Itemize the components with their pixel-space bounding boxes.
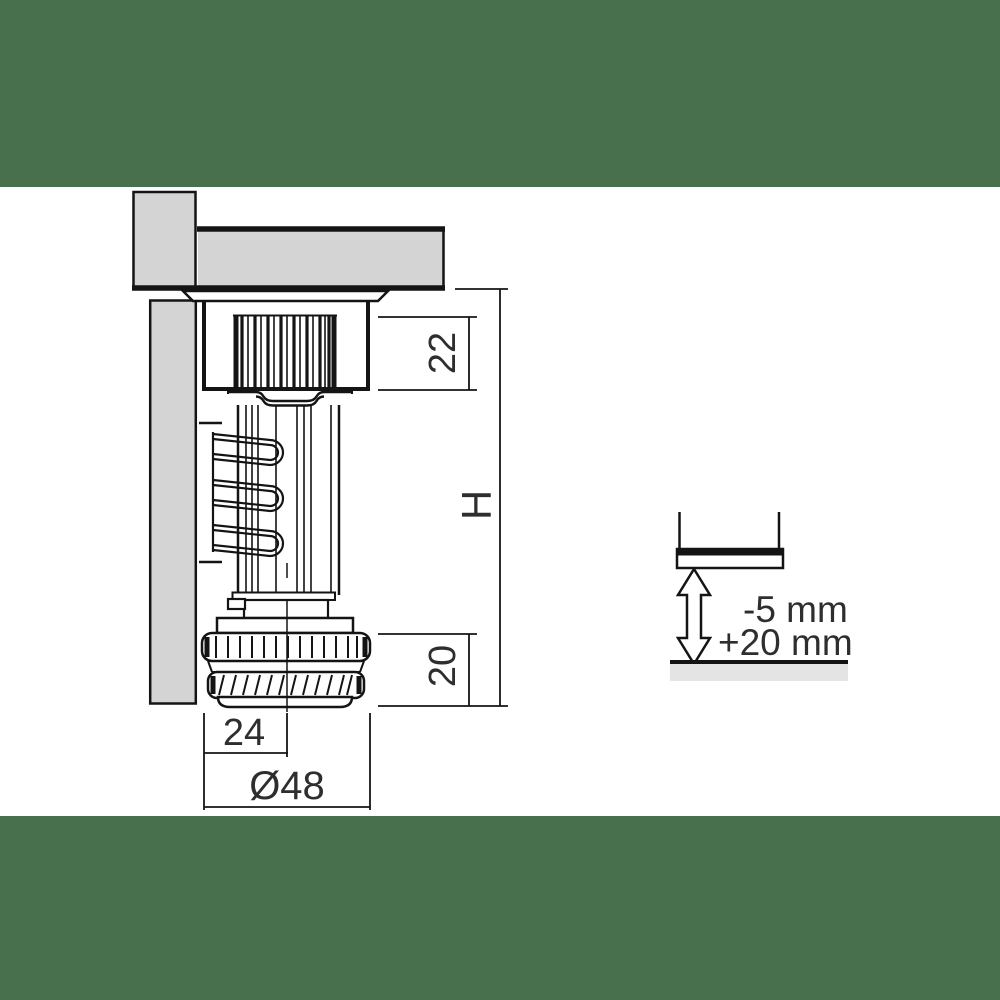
leg-foot (202, 593, 370, 713)
dimension-label-H: H (453, 490, 500, 520)
foot-bottom-cap (218, 697, 352, 707)
cabinet-side-panel-top (134, 192, 196, 287)
leg-mounting-plate (183, 291, 388, 390)
spring (199, 423, 283, 562)
adjustable-leg-technical-drawing: 22 H 20 24 Ø48 -5 mm +20 mm (0, 0, 1000, 1000)
collar-clip-tab (228, 599, 245, 609)
cabinet-bottom-panel (198, 229, 444, 286)
foot-cup-top (217, 618, 353, 633)
cabinet-side-panel-lower (150, 301, 196, 704)
catalog-drawing-page: 22 H 20 24 Ø48 -5 mm +20 mm (0, 0, 1000, 1000)
dimension-label-diameter-48: Ø48 (249, 764, 325, 808)
leg-tube (238, 405, 339, 595)
dimension-label-22: 22 (422, 332, 464, 374)
adjust-plus-label: +20 mm (718, 622, 853, 663)
mounting-flange (183, 291, 388, 301)
dimension-label-20: 20 (422, 645, 464, 687)
floor-strip (670, 664, 848, 681)
dimension-label-24: 24 (223, 712, 265, 754)
adjustment-knurl-wheel (228, 315, 352, 406)
adjustment-range-diagram: -5 mm +20 mm (670, 512, 853, 681)
foot-spindle-collar (244, 600, 328, 618)
double-arrow-icon (678, 569, 710, 664)
